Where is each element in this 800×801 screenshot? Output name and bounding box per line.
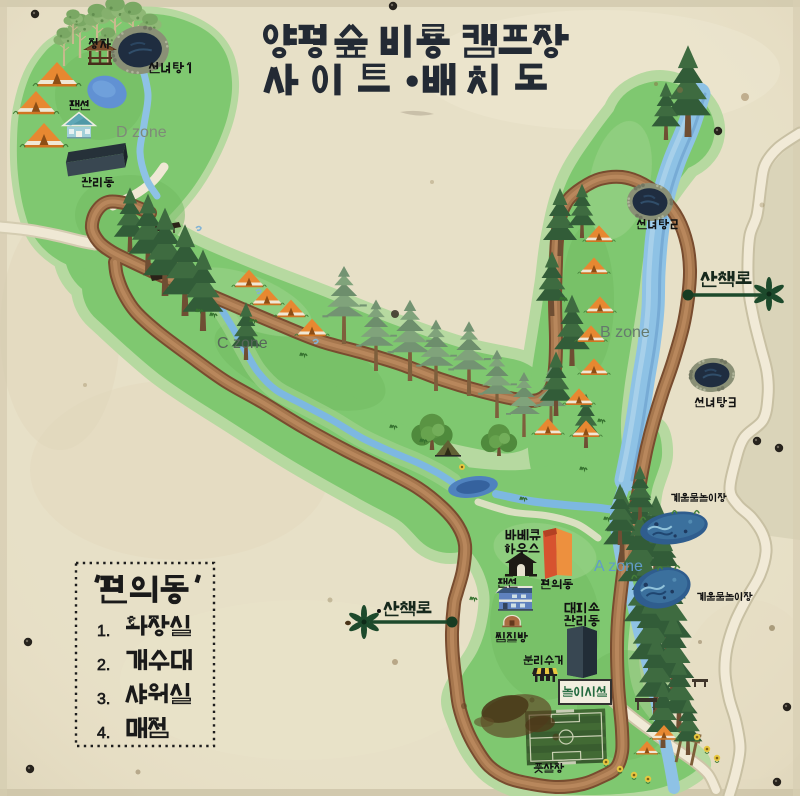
- svg-text:4.: 4.: [97, 725, 110, 742]
- svg-text:2.: 2.: [97, 657, 110, 674]
- svg-text:3.: 3.: [97, 691, 110, 708]
- svg-text:A zone: A zone: [594, 558, 643, 575]
- svg-text:1.: 1.: [97, 623, 110, 640]
- svg-text:C zone: C zone: [217, 335, 268, 352]
- svg-text:D zone: D zone: [116, 124, 167, 141]
- svg-text:B zone: B zone: [600, 324, 650, 341]
